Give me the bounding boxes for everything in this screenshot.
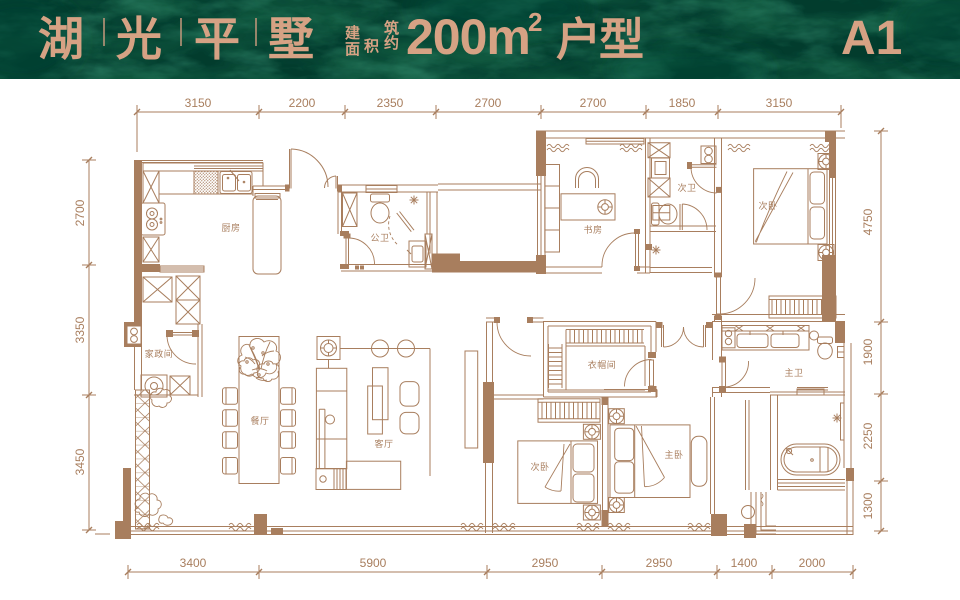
svg-text:3450: 3450 (73, 448, 87, 475)
svg-text:次卧: 次卧 (758, 200, 777, 211)
svg-text:客厅: 客厅 (374, 438, 393, 449)
svg-text:2000: 2000 (799, 556, 826, 570)
svg-text:面: 面 (345, 41, 360, 58)
svg-text:4750: 4750 (861, 208, 875, 235)
svg-text:建: 建 (345, 24, 361, 42)
svg-text:1300: 1300 (861, 492, 875, 519)
svg-text:3150: 3150 (185, 96, 212, 110)
svg-text:1850: 1850 (669, 96, 696, 110)
svg-text:公卫: 公卫 (370, 233, 389, 243)
svg-text:光: 光 (116, 13, 162, 65)
svg-text:2700: 2700 (73, 199, 87, 226)
svg-text:约: 约 (384, 34, 399, 52)
svg-text:墅: 墅 (268, 13, 314, 65)
svg-text:3400: 3400 (180, 556, 207, 570)
svg-text:3150: 3150 (766, 96, 793, 110)
svg-text:餐厅: 餐厅 (250, 415, 269, 426)
svg-text:书房: 书房 (583, 224, 602, 235)
svg-text:主卧: 主卧 (664, 449, 683, 460)
svg-text:次卫: 次卫 (677, 182, 696, 193)
svg-text:湖: 湖 (38, 13, 84, 65)
svg-text:衣帽间: 衣帽间 (588, 359, 617, 370)
svg-text:5900: 5900 (360, 556, 387, 570)
svg-text:2250: 2250 (861, 422, 875, 449)
svg-text:平: 平 (194, 13, 240, 65)
svg-text:2950: 2950 (646, 556, 673, 570)
svg-text:1400: 1400 (731, 556, 758, 570)
svg-text:2950: 2950 (532, 556, 559, 570)
svg-text:2700: 2700 (580, 96, 607, 110)
svg-text:2700: 2700 (475, 96, 502, 110)
svg-text:1900: 1900 (861, 338, 875, 365)
svg-text:200m: 200m (406, 9, 530, 65)
svg-text:2200: 2200 (289, 96, 316, 110)
svg-text:3350: 3350 (73, 316, 87, 343)
svg-text:2350: 2350 (377, 96, 404, 110)
svg-text:主卫: 主卫 (784, 367, 803, 378)
svg-text:次卧: 次卧 (530, 461, 549, 472)
svg-text:家政间: 家政间 (145, 348, 174, 359)
svg-text:2: 2 (528, 7, 542, 37)
svg-text:厨房: 厨房 (221, 222, 240, 233)
svg-text:户: 户 (556, 14, 601, 65)
svg-text:A1: A1 (841, 12, 902, 65)
svg-text:型: 型 (599, 14, 644, 65)
svg-text:积: 积 (364, 37, 379, 55)
